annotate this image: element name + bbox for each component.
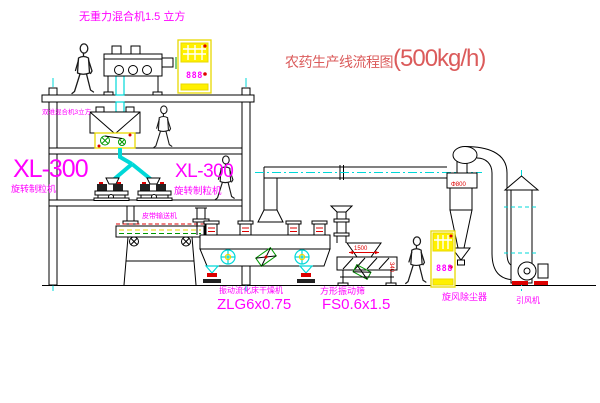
sieve-feed-pipe [331, 206, 352, 243]
label-granulator-right-name: 旋转制粒机 [174, 187, 222, 197]
label-granulator-left-name: 旋转制粒机 [11, 185, 56, 194]
fluid-bed-dryer-machine [200, 210, 330, 283]
panel-display-right: 888 [436, 264, 453, 274]
label-cyclone: 旋风除尘器 [442, 293, 487, 302]
label-dryer-model: ZLG6x0.75 [217, 297, 291, 312]
person-figure [154, 106, 172, 148]
label-granulator-left-model: XL-300 [13, 157, 88, 182]
label-granulator-right-model: XL-300 [175, 162, 233, 181]
gravity-mixer-machine [104, 46, 179, 95]
page-title: 农药生产线流程图 [285, 55, 393, 69]
process-flow-diagram: 888 [0, 0, 600, 403]
page-title-capacity: (500kg/h) [393, 47, 485, 71]
dim-cyclone-diameter: Φ800 [451, 182, 466, 188]
downcomer-duct [465, 147, 518, 281]
granulator-right-machine [137, 182, 172, 201]
label-sieve-name: 方形振动筛 [320, 287, 365, 296]
label-second-mixer: 双维混合机3立方 [42, 110, 91, 117]
dim-sieve-height: 340 [388, 262, 394, 273]
label-sieve-model: FS0.6x1.5 [322, 297, 390, 312]
panel-display-top: 888 [186, 71, 203, 81]
belt-conveyor-machine [116, 224, 204, 285]
control-cabinet-top: 888 [178, 40, 211, 93]
label-dryer-name: 振动流化床干燥机 [219, 287, 283, 295]
second-mixer-machine [90, 102, 140, 148]
discharge-chute [123, 206, 138, 224]
person-figure [72, 44, 94, 94]
control-cabinet-right: 888 [431, 231, 455, 287]
person-figure [406, 237, 426, 284]
label-induced-fan: 引风机 [516, 297, 540, 305]
label-gravity-mixer: 无重力混合机1.5 立方 [79, 12, 185, 23]
dim-sieve-length: 1500 [354, 246, 368, 252]
granulator-left-machine [94, 182, 129, 201]
label-belt-conveyor: 皮带输送机 [142, 213, 177, 220]
